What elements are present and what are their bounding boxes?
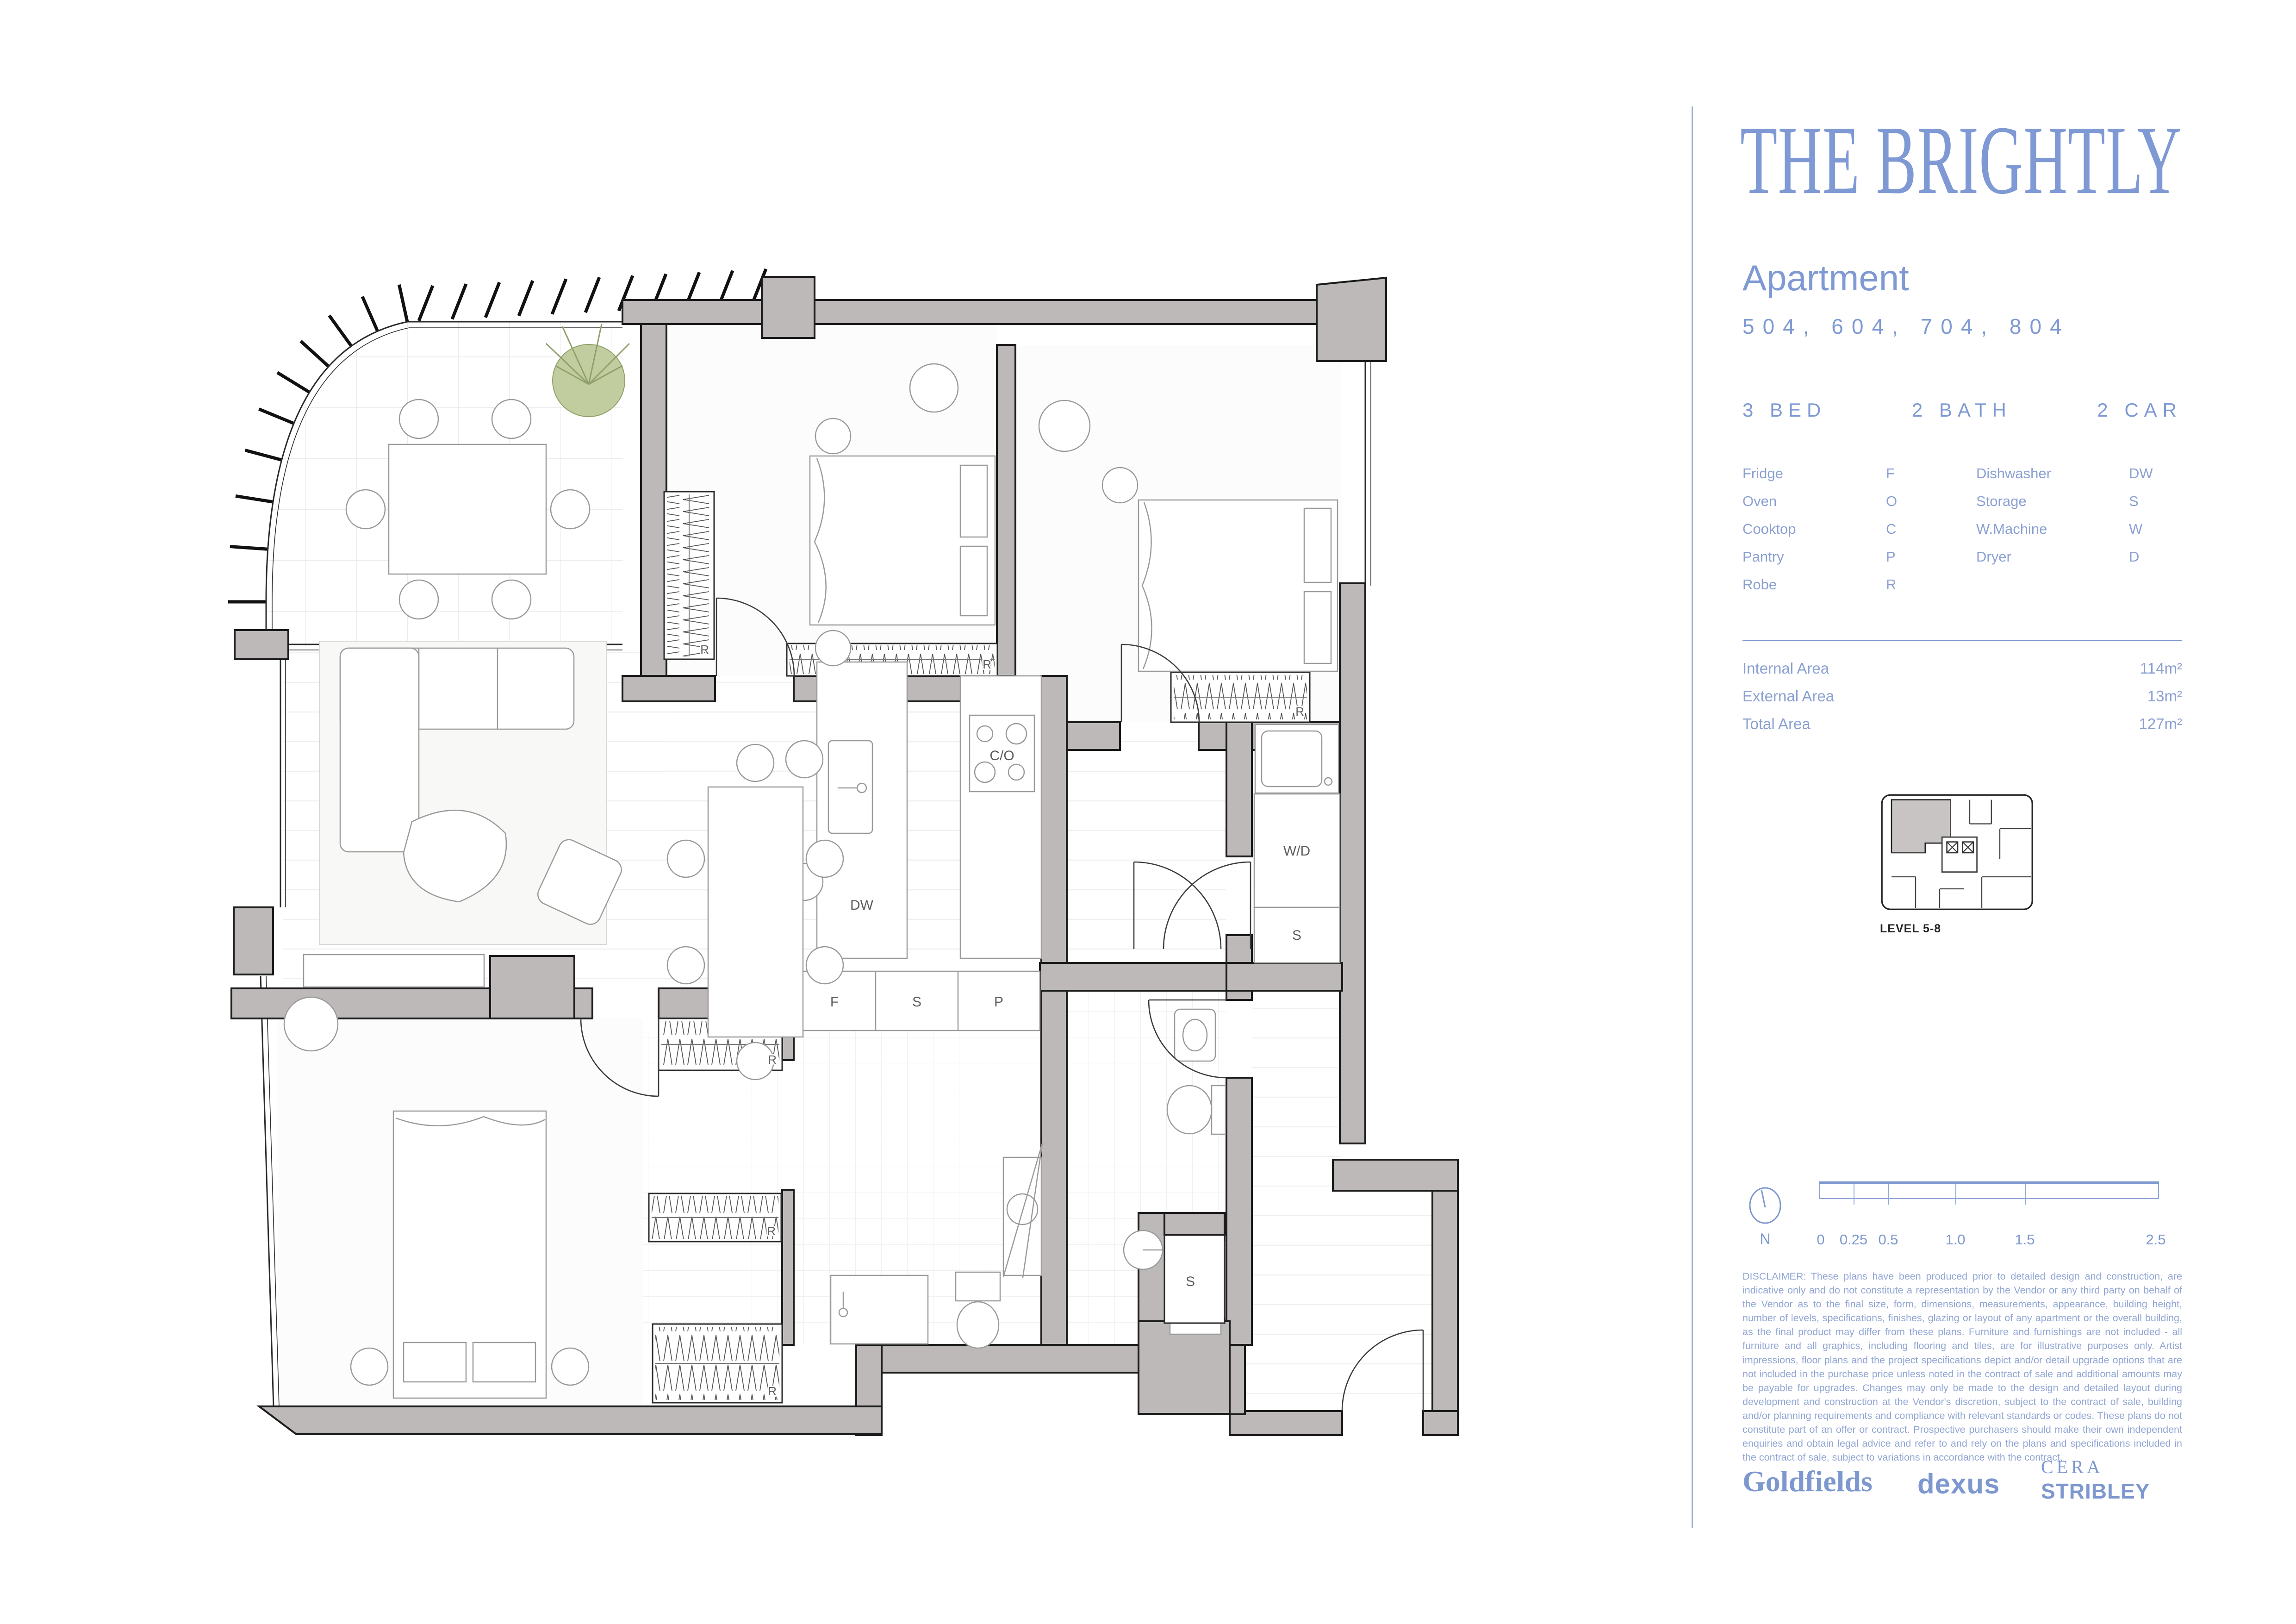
entry-corridor-floor [1252, 991, 1340, 1192]
legend-code: C [1886, 521, 1896, 537]
legend-row: CooktopC [1742, 521, 1976, 537]
legend-right-column: DishwasherDW StorageS W.MachineW DryerD [1976, 465, 2182, 593]
scale-bar-box [1819, 1184, 2159, 1199]
brand-title: THE BRIGHTLY [1740, 111, 2182, 209]
goldfields-logo: Goldfields [1742, 1464, 1873, 1499]
legend-label: Robe [1742, 576, 1886, 593]
legend-row: FridgeF [1742, 465, 1976, 482]
scale-tick [2025, 1184, 2026, 1205]
legend-row: DryerD [1976, 549, 2182, 565]
apartment-heading: Apartment [1742, 257, 1909, 299]
legend: FridgeF OvenO CooktopC PantryP RobeR Dis… [1742, 465, 2182, 593]
toilet-tank [956, 1272, 1000, 1301]
legend-row: OvenO [1742, 493, 1976, 510]
legend-code: DW [2129, 465, 2153, 482]
legend-label: W.Machine [1976, 521, 2129, 537]
column [1317, 278, 1386, 361]
area-row: Internal Area114m² [1742, 660, 2182, 677]
toilet [957, 1302, 999, 1348]
compass-needle [1761, 1190, 1765, 1207]
areas: Internal Area114m² External Area13m² Tot… [1742, 660, 2182, 733]
tv-bench [304, 955, 484, 987]
label-robe: R [768, 1384, 777, 1398]
scale-tick [1955, 1184, 1956, 1205]
label-robe: R [1295, 705, 1304, 718]
cera-logo-text: CERA [2041, 1456, 2150, 1478]
legend-label: Dryer [1976, 549, 2129, 565]
spec-bath: 2 BATH [1912, 399, 2012, 421]
area-row: Total Area127m² [1742, 715, 2182, 733]
scale-label: 2.5 [2146, 1231, 2165, 1248]
label-pantry: P [994, 994, 1003, 1010]
spec-row: 3 BED 2 BATH 2 CAR [1742, 399, 2182, 421]
shower [831, 1275, 928, 1344]
robe-bed2-wall [664, 492, 714, 659]
legend-code: W [2129, 521, 2142, 537]
legend-label: Cooktop [1742, 521, 1886, 537]
legend-label: Pantry [1742, 549, 1886, 565]
scale-label: 1.5 [2015, 1231, 2035, 1248]
scale-tick [1888, 1184, 1889, 1205]
entry-floor [1230, 1191, 1437, 1411]
compass-label: N [1760, 1230, 1770, 1247]
area-label: External Area [1742, 687, 1834, 705]
legend-code: P [1886, 549, 1896, 565]
robe-master-bottom [653, 1324, 782, 1403]
label-fridge: F [830, 994, 839, 1010]
dining-table [708, 787, 803, 1037]
scale-label: 1.0 [1945, 1231, 1965, 1248]
keyplan-caption: LEVEL 5-8 [1880, 922, 1941, 936]
panel-divider [1692, 106, 1693, 1528]
toilet-tank [1212, 1086, 1226, 1134]
robe-bed3 [1171, 672, 1310, 722]
legend-row: PantryP [1742, 549, 1976, 565]
scale-bar: 0 0.25 0.5 1.0 1.5 2.5 [1819, 1181, 2159, 1199]
laundry-sink [1255, 725, 1338, 793]
legend-code: S [2129, 493, 2139, 510]
legend-row: StorageS [1976, 493, 2182, 510]
scale-label: 0 [1817, 1231, 1824, 1248]
label-robe: R [700, 643, 709, 656]
section-divider [1742, 640, 2182, 641]
legend-code: R [1886, 576, 1896, 593]
label-washer-dryer: W/D [1283, 843, 1310, 859]
legend-label: Storage [1976, 493, 2129, 510]
north-compass: N [1748, 1181, 1785, 1251]
label-storage: S [1186, 1274, 1195, 1289]
chair [284, 997, 338, 1051]
chair [910, 364, 958, 412]
legend-left-column: FridgeF OvenO CooktopC PantryP RobeR [1742, 465, 1976, 593]
outdoor-table [389, 444, 546, 574]
area-value: 127m² [2139, 715, 2182, 733]
floor-plan: R R R R R R DW C/O F S P W/D S S [0, 0, 1692, 1624]
logos-row: Goldfields dexus CERA STRIBLEY [1742, 1456, 2182, 1516]
apartment-numbers: 504, 604, 704, 804 [1742, 314, 2070, 339]
stribley-logo-text: STRIBLEY [2041, 1479, 2150, 1504]
legend-code: D [2129, 549, 2139, 565]
label-storage: S [912, 994, 921, 1010]
disclaimer-text: DISCLAIMER: These plans have been produc… [1742, 1269, 2182, 1464]
sofa-chaise [340, 648, 419, 852]
label-storage: S [1292, 928, 1301, 943]
legend-code: O [1886, 493, 1897, 510]
basin [1175, 1009, 1215, 1061]
label-robe: R [767, 1224, 776, 1238]
column [762, 277, 815, 338]
scale-label: 0.5 [1878, 1231, 1898, 1248]
legend-label: Fridge [1742, 465, 1886, 482]
chair [1039, 400, 1090, 451]
cera-stribley-logo: CERA STRIBLEY [2041, 1456, 2150, 1504]
key-plan [1879, 793, 2036, 913]
area-row: External Area13m² [1742, 687, 2182, 705]
label-cooktop: C/O [989, 748, 1014, 763]
area-label: Internal Area [1742, 660, 1829, 677]
spec-bed: 3 BED [1742, 399, 1826, 421]
area-label: Total Area [1742, 715, 1811, 733]
legend-label: Oven [1742, 493, 1886, 510]
area-value: 114m² [2140, 660, 2182, 677]
spec-car: 2 CAR [2097, 399, 2182, 421]
label-robe: R [983, 657, 991, 671]
scale-label: 0.25 [1840, 1231, 1867, 1248]
stool [786, 741, 823, 778]
dexus-logo: dexus [1917, 1468, 2000, 1500]
label-dishwasher: DW [850, 898, 874, 913]
area-value: 13m² [2147, 687, 2182, 705]
label-robe: R [768, 1053, 777, 1067]
legend-label: Dishwasher [1976, 465, 2129, 482]
legend-row: DishwasherDW [1976, 465, 2182, 482]
legend-row: W.MachineW [1976, 521, 2182, 537]
legend-row: RobeR [1742, 576, 1976, 593]
toilet [1167, 1086, 1212, 1134]
legend-code: F [1886, 465, 1895, 482]
scale-tick [1854, 1184, 1854, 1205]
robe-master-mid [649, 1193, 781, 1242]
